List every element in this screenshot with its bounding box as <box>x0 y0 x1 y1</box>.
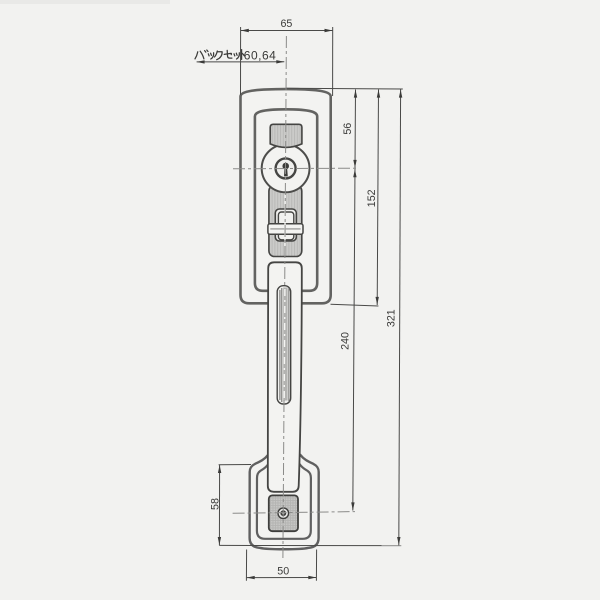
svg-text:240: 240 <box>340 332 352 350</box>
svg-text:152: 152 <box>366 189 378 207</box>
svg-text:50: 50 <box>277 565 289 577</box>
svg-text:65: 65 <box>280 18 292 30</box>
svg-text:60,64: 60,64 <box>244 48 277 62</box>
svg-text:56: 56 <box>342 123 354 135</box>
svg-text:58: 58 <box>209 498 221 510</box>
svg-text:321: 321 <box>386 309 398 327</box>
